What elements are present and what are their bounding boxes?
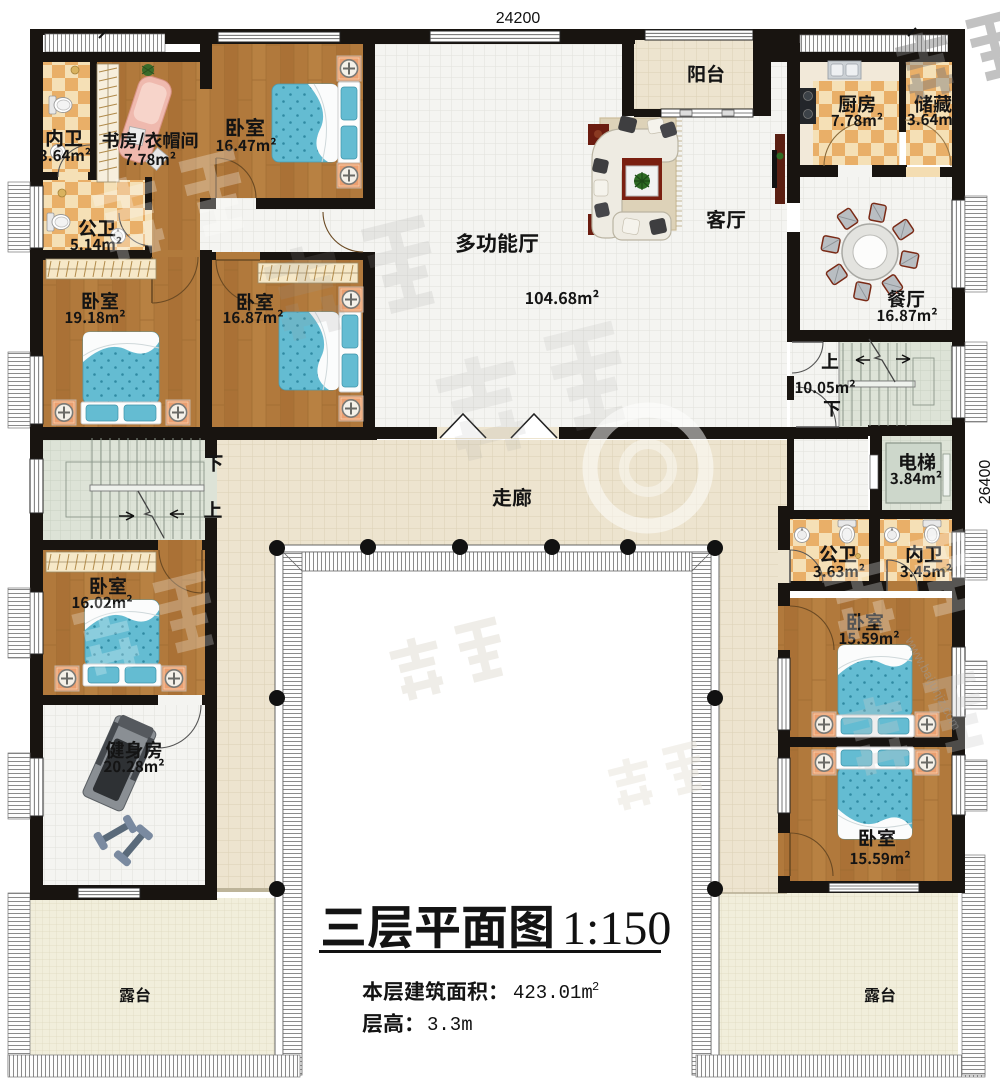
svg-text:423.01m: 423.01m bbox=[513, 982, 593, 1004]
svg-text:1:150: 1:150 bbox=[562, 902, 671, 955]
svg-text:26400: 26400 bbox=[977, 460, 994, 505]
svg-text:2: 2 bbox=[592, 980, 599, 994]
svg-text:24200: 24200 bbox=[496, 10, 541, 27]
svg-text:3.3m: 3.3m bbox=[427, 1014, 473, 1036]
